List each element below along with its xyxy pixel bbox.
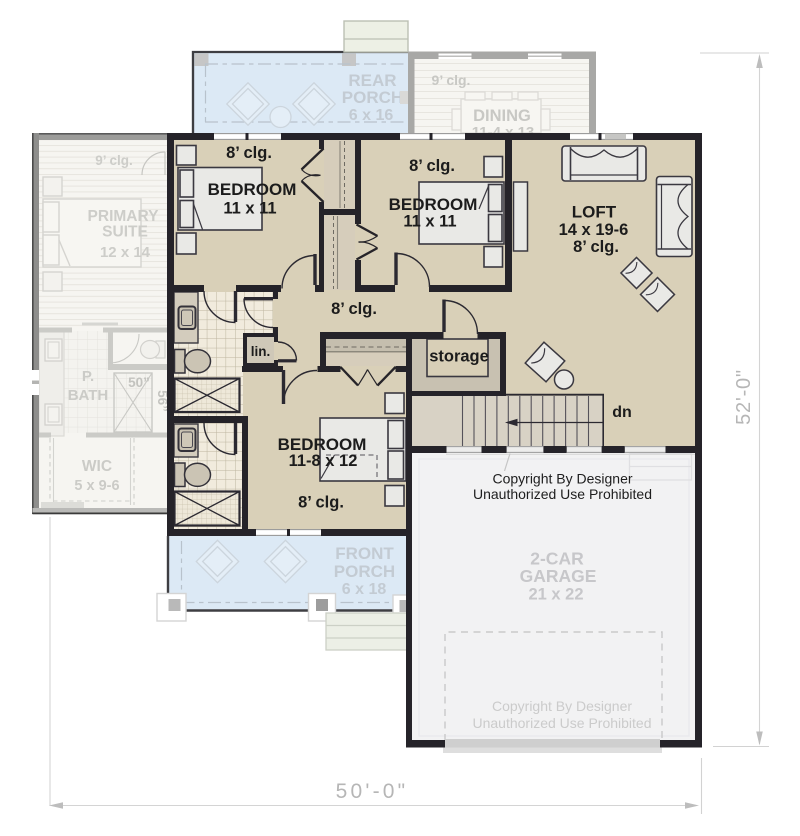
- svg-text:8’ clg.: 8’ clg.: [298, 494, 344, 512]
- svg-text:PORCH: PORCH: [334, 562, 395, 581]
- svg-text:BEDROOM: BEDROOM: [208, 180, 297, 199]
- svg-text:P.: P.: [82, 368, 94, 385]
- svg-text:Unauthorized Use Prohibited: Unauthorized Use Prohibited: [473, 715, 652, 731]
- svg-text:8’ clg.: 8’ clg.: [226, 144, 272, 162]
- svg-text:SUITE: SUITE: [102, 224, 148, 241]
- svg-text:dn: dn: [612, 404, 632, 421]
- svg-text:BATH: BATH: [68, 387, 109, 404]
- svg-text:52'-0": 52'-0": [733, 369, 755, 425]
- svg-text:11 x 11: 11 x 11: [223, 200, 276, 218]
- svg-text:9’ clg.: 9’ clg.: [95, 153, 133, 168]
- svg-text:Copyright By Designer: Copyright By Designer: [492, 471, 632, 487]
- svg-text:BEDROOM: BEDROOM: [389, 195, 478, 214]
- svg-text:12 x 14: 12 x 14: [100, 244, 151, 261]
- svg-text:DINING: DINING: [473, 107, 531, 125]
- svg-text:PORCH: PORCH: [342, 88, 403, 107]
- svg-text:9’ clg.: 9’ clg.: [432, 72, 471, 88]
- svg-text:lin.: lin.: [251, 344, 271, 359]
- svg-text:5 x 9-6: 5 x 9-6: [74, 478, 119, 494]
- svg-text:11 x 11: 11 x 11: [403, 213, 456, 231]
- svg-text:storage: storage: [429, 348, 489, 366]
- svg-text:GARAGE: GARAGE: [520, 566, 597, 586]
- svg-text:21 x 22: 21 x 22: [528, 586, 583, 604]
- svg-text:PRIMARY: PRIMARY: [88, 208, 160, 225]
- svg-text:50”: 50”: [128, 375, 150, 390]
- svg-text:14 x 19-6: 14 x 19-6: [559, 221, 629, 239]
- svg-text:8’ clg.: 8’ clg.: [573, 238, 619, 256]
- svg-text:WIC: WIC: [82, 458, 112, 475]
- svg-text:FRONT: FRONT: [335, 544, 394, 563]
- svg-text:8’ clg.: 8’ clg.: [409, 157, 455, 175]
- svg-text:8’ clg.: 8’ clg.: [331, 300, 377, 318]
- svg-text:Copyright By Designer: Copyright By Designer: [492, 698, 632, 714]
- svg-text:6 x 16: 6 x 16: [349, 107, 394, 124]
- svg-text:11-8 x 12: 11-8 x 12: [289, 452, 358, 470]
- svg-text:50'-0": 50'-0": [336, 780, 409, 803]
- svg-text:6 x 18: 6 x 18: [342, 581, 387, 598]
- svg-text:LOFT: LOFT: [572, 203, 617, 222]
- svg-text:Unauthorized Use Prohibited: Unauthorized Use Prohibited: [473, 486, 652, 502]
